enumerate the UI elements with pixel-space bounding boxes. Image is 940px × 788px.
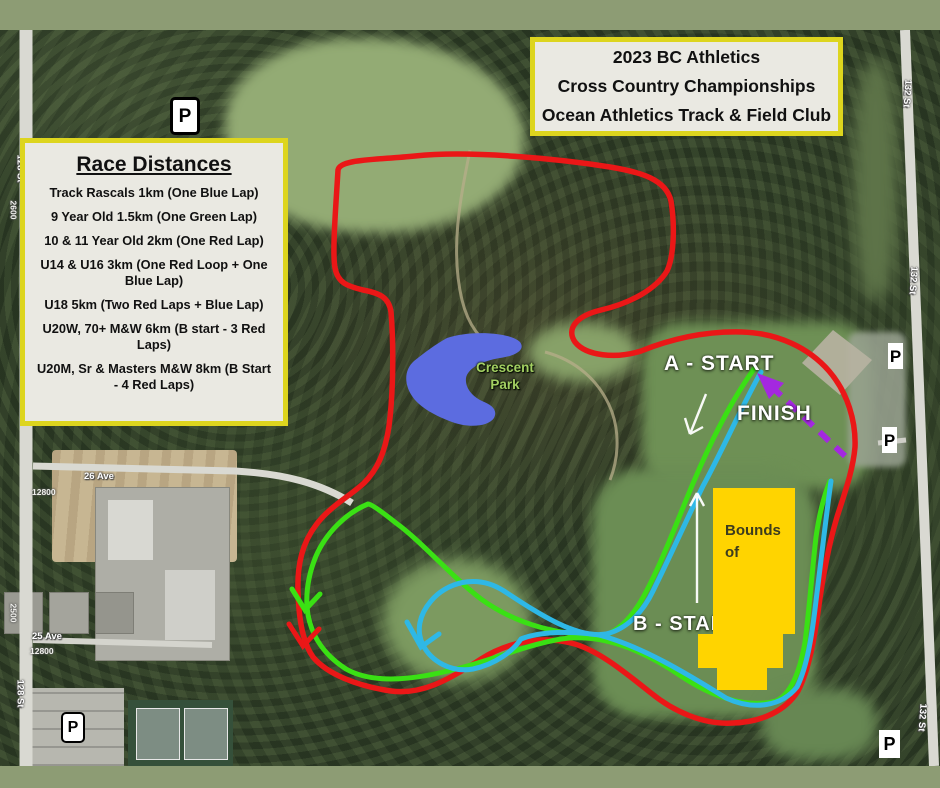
parking-icon: P: [61, 712, 85, 743]
street-label-132-st: 132 St: [916, 703, 929, 732]
legend-item: U20M, Sr & Masters M&W 8km (B Start - 4 …: [34, 361, 274, 393]
legend-item: U20W, 70+ M&W 6km (B start - 3 Red Laps): [34, 321, 274, 353]
bottom-margin-band: [0, 766, 940, 788]
race-distances-legend: Race Distances Track Rascals 1km (One Bl…: [20, 138, 288, 426]
crescent-park-label: Crescent Park: [455, 360, 555, 394]
park-label-line1: Crescent: [455, 360, 555, 377]
title-line-2: Cross Country Championships: [535, 72, 838, 101]
park-label-line2: Park: [455, 377, 555, 394]
legend-item: U18 5km (Two Red Laps + Blue Lap): [34, 297, 274, 313]
title-line-1: 2023 BC Athletics: [535, 43, 838, 72]
oob-foot: [717, 668, 767, 690]
address-label-12800: 12800: [30, 646, 54, 656]
oob-label-line2: Bounds: [725, 520, 781, 542]
blue-direction-arrow: [407, 622, 439, 647]
street-label-26-ave: 26 Ave: [84, 471, 114, 482]
street-label-132-st: 132 St: [901, 79, 914, 108]
oob-mid: [698, 634, 783, 668]
street-label-25-ave: 25 Ave: [32, 631, 62, 642]
address-label-12800: 12800: [32, 487, 56, 497]
street-label-128-st: 128 St: [15, 680, 26, 708]
legend-item: 9 Year Old 1.5km (One Green Lap): [34, 209, 274, 225]
parking-icon: P: [879, 730, 900, 758]
park-trail: [457, 150, 498, 352]
title-line-3: Ocean Athletics Track & Field Club: [535, 101, 838, 130]
legend-item: U14 & U16 3km (One Red Loop + One Blue L…: [34, 257, 274, 289]
address-label-2500: 2500: [8, 604, 18, 623]
a-start-label: A - START: [664, 352, 774, 376]
legend-item: 10 & 11 Year Old 2km (One Red Lap): [34, 233, 274, 249]
address-label-2600: 2600: [8, 201, 18, 220]
legend-title: Race Distances: [32, 153, 276, 177]
road-132-st: [905, 30, 934, 766]
park-trail: [545, 352, 617, 480]
street-label-132-st: 132 St: [907, 266, 920, 295]
road-26-ave: [33, 466, 352, 503]
course-map-poster: A - START FINISH B - START Crescent Park…: [0, 0, 940, 788]
parking-icon: P: [882, 427, 897, 453]
a-start-direction-arrow: [685, 394, 706, 434]
top-margin-band: [0, 0, 940, 30]
legend-item: Track Rascals 1km (One Blue Lap): [34, 185, 274, 201]
event-title-box: 2023 BC Athletics Cross Country Champion…: [530, 37, 843, 136]
finish-label: FINISH: [737, 402, 812, 426]
parking-icon: P: [888, 343, 903, 369]
parking-icon: P: [170, 97, 200, 135]
